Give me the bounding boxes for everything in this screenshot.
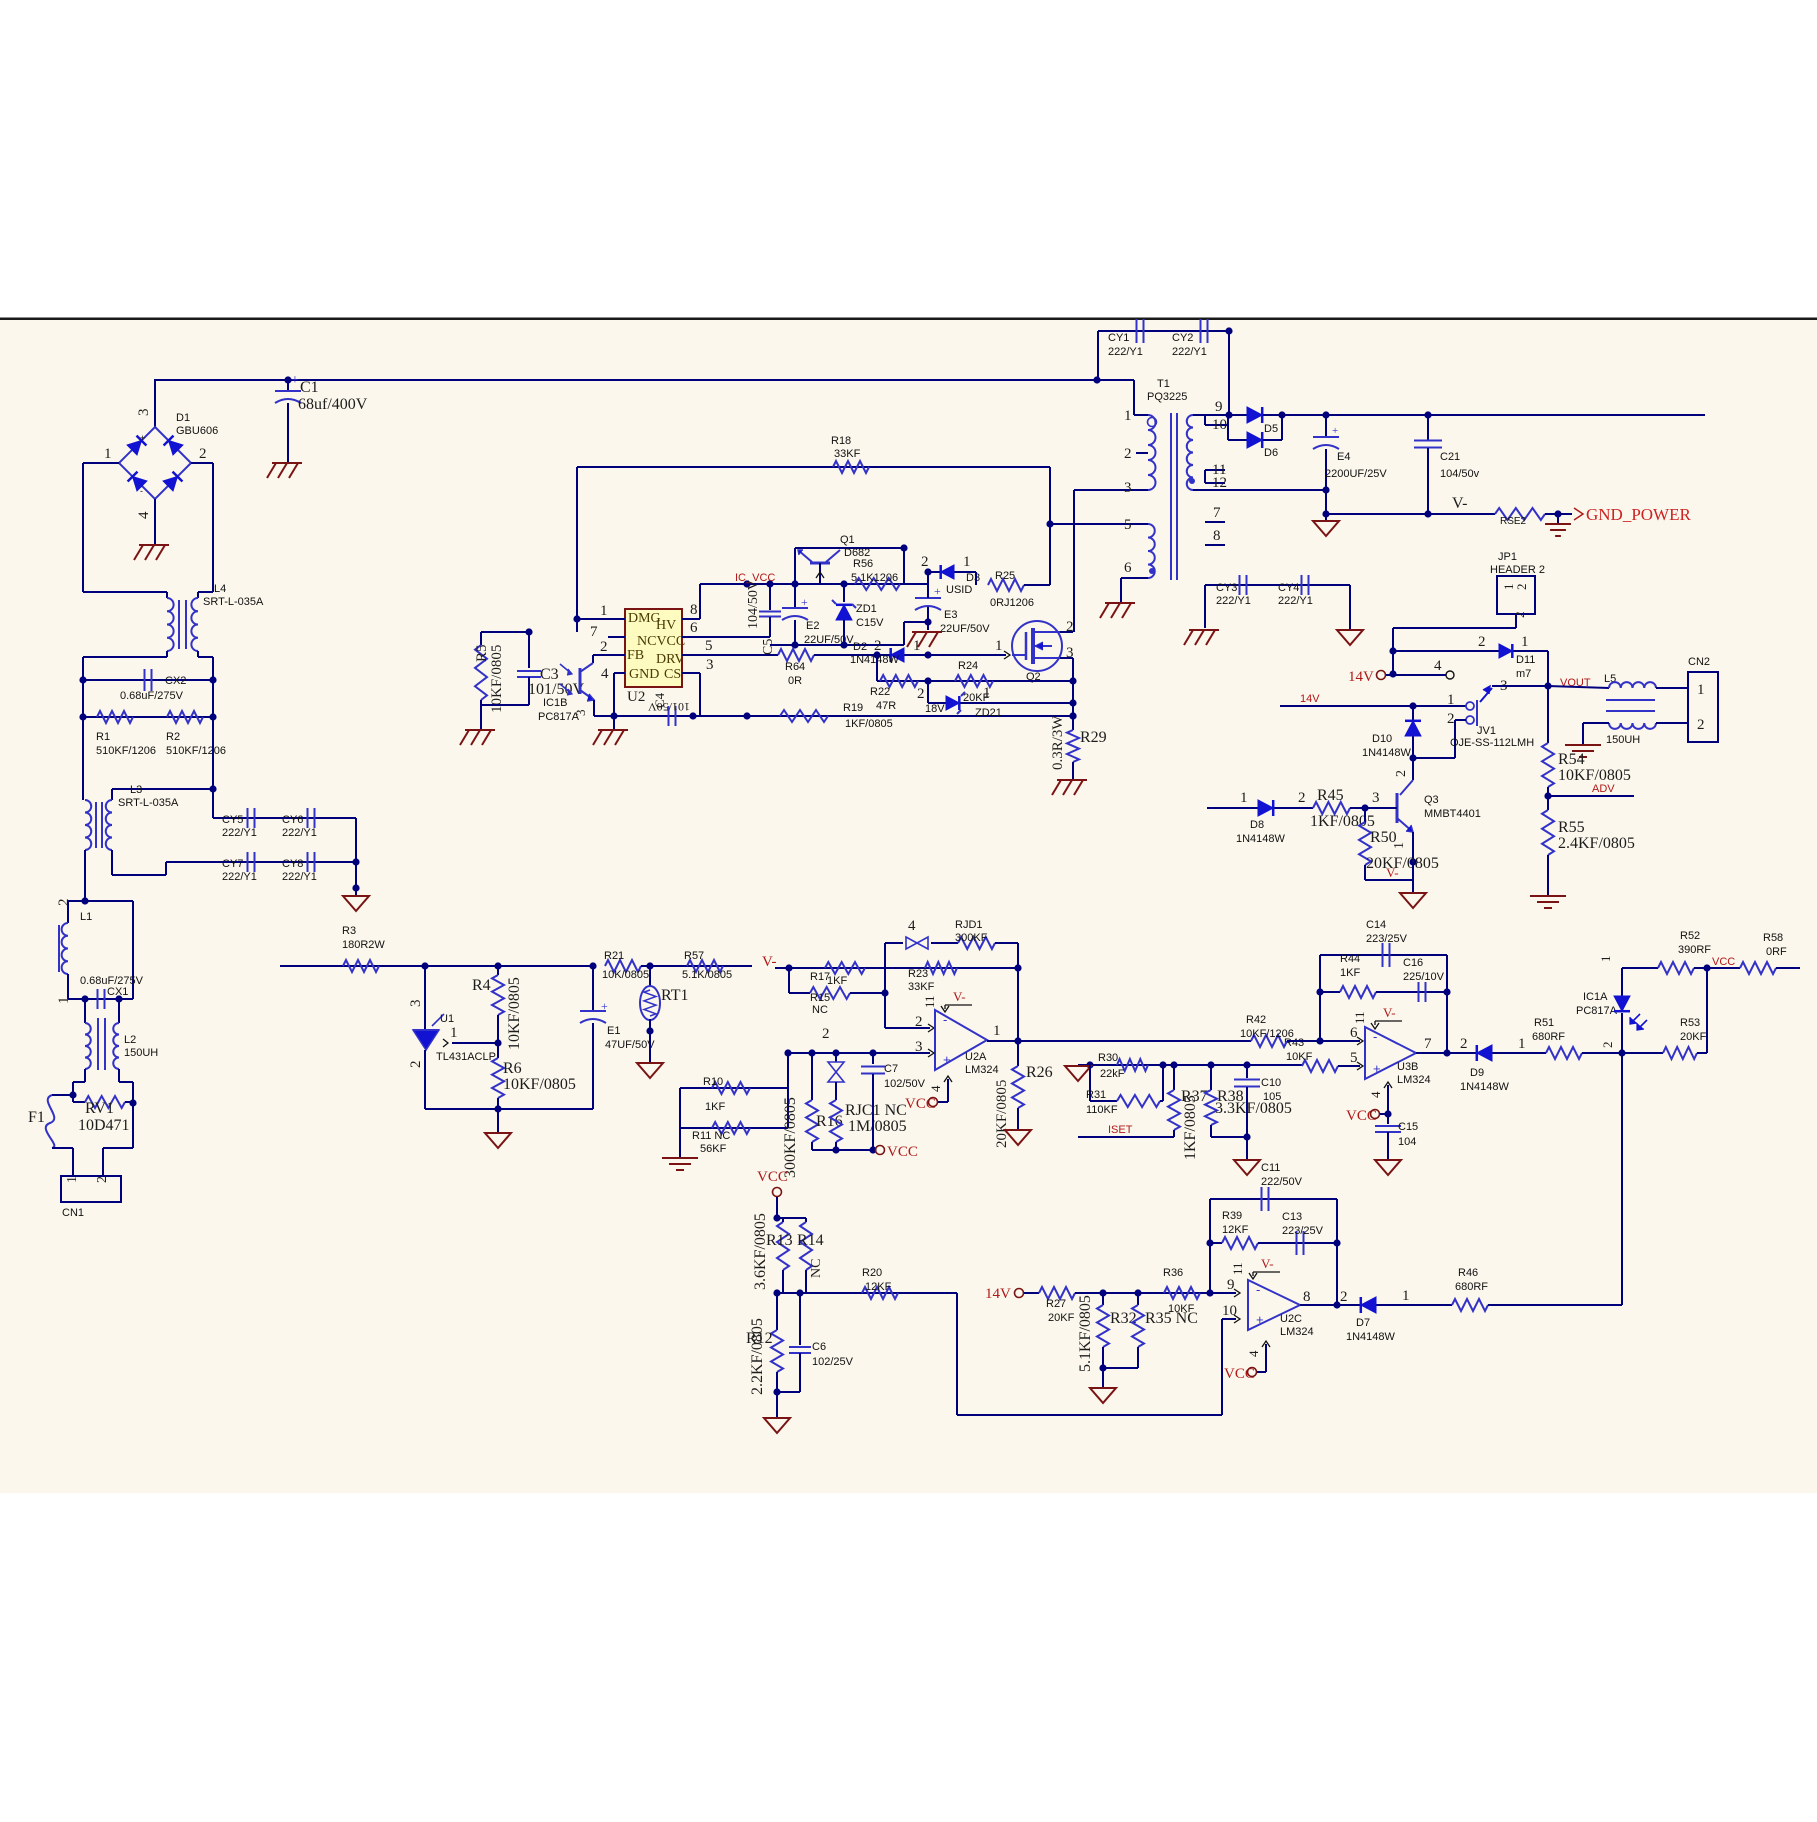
svg-text:HEADER 2: HEADER 2 xyxy=(1490,564,1545,576)
svg-text:1: 1 xyxy=(1521,634,1529,650)
svg-text:R14: R14 xyxy=(797,1232,824,1249)
svg-text:104: 104 xyxy=(1398,1136,1416,1148)
svg-text:1N4148W: 1N4148W xyxy=(1460,1081,1510,1093)
svg-text:0R: 0R xyxy=(788,675,802,687)
svg-text:E1: E1 xyxy=(607,1025,620,1037)
svg-text:1: 1 xyxy=(1402,1288,1410,1304)
svg-text:11: 11 xyxy=(922,995,937,1008)
svg-text:Q3: Q3 xyxy=(1424,794,1439,806)
svg-text:C6: C6 xyxy=(812,1341,826,1353)
svg-text:6: 6 xyxy=(690,620,698,636)
svg-text:390RF: 390RF xyxy=(1678,944,1711,956)
svg-text:CN1: CN1 xyxy=(62,1207,84,1219)
svg-text:C13: C13 xyxy=(1282,1211,1302,1223)
svg-text:R2: R2 xyxy=(166,731,180,743)
svg-text:R45: R45 xyxy=(1317,787,1344,804)
svg-text:150UH: 150UH xyxy=(1606,734,1640,746)
svg-text:5: 5 xyxy=(705,638,713,654)
svg-text:IC1A: IC1A xyxy=(1583,991,1608,1003)
svg-text:102/50V: 102/50V xyxy=(884,1078,926,1090)
svg-text:2: 2 xyxy=(1460,1036,1468,1052)
svg-text:V-: V- xyxy=(953,989,966,1004)
svg-text:4: 4 xyxy=(908,918,916,934)
svg-text:RT1: RT1 xyxy=(661,987,688,1004)
svg-text:5: 5 xyxy=(1350,1050,1358,1066)
svg-text:-: - xyxy=(140,486,143,496)
svg-text:18V: 18V xyxy=(925,703,945,715)
svg-text:R1: R1 xyxy=(96,731,110,743)
svg-text:68uf/400V: 68uf/400V xyxy=(298,396,368,413)
svg-text:510KF/1206: 510KF/1206 xyxy=(96,745,156,757)
svg-text:ISET: ISET xyxy=(1108,1124,1133,1136)
svg-text:C1: C1 xyxy=(300,379,319,396)
svg-text:R42: R42 xyxy=(1246,1014,1266,1026)
svg-text:R54: R54 xyxy=(1558,751,1585,768)
svg-text:VCC: VCC xyxy=(757,1169,788,1185)
svg-text:6: 6 xyxy=(1124,560,1132,576)
svg-text:12KF: 12KF xyxy=(1222,1224,1249,1236)
svg-text:150UH: 150UH xyxy=(124,1047,158,1059)
svg-text:MMBT4401: MMBT4401 xyxy=(1424,808,1481,820)
svg-text:20KF: 20KF xyxy=(1048,1312,1075,1324)
svg-text:R27: R27 xyxy=(1046,1298,1066,1310)
svg-text:RJC1 NC: RJC1 NC xyxy=(845,1102,907,1119)
svg-text:104/50v: 104/50v xyxy=(1440,468,1480,480)
svg-text:m7: m7 xyxy=(1516,668,1531,680)
svg-text:R13: R13 xyxy=(766,1232,793,1249)
svg-text:9: 9 xyxy=(1227,1277,1235,1293)
svg-text:SRT-L-035A: SRT-L-035A xyxy=(118,797,179,809)
svg-text:104/50V: 104/50V xyxy=(746,580,761,629)
svg-text:1N4148W: 1N4148W xyxy=(1362,747,1412,759)
svg-text:1: 1 xyxy=(1518,1036,1526,1052)
svg-text:R32: R32 xyxy=(1110,1310,1137,1327)
svg-text:3: 3 xyxy=(573,710,588,717)
svg-text:1N4148W: 1N4148W xyxy=(1346,1331,1396,1343)
svg-text:U2A: U2A xyxy=(965,1051,987,1063)
svg-text:14V: 14V xyxy=(1300,693,1320,705)
svg-text:IC1B: IC1B xyxy=(543,697,567,709)
svg-text:3: 3 xyxy=(136,409,152,417)
svg-text:1M/0805: 1M/0805 xyxy=(848,1118,907,1135)
svg-text:5.1K1206: 5.1K1206 xyxy=(851,572,898,584)
svg-text:300KF/0805: 300KF/0805 xyxy=(782,1097,799,1178)
svg-text:TL431ACLP: TL431ACLP xyxy=(436,1051,496,1063)
svg-text:R29: R29 xyxy=(1080,729,1107,746)
svg-text:1KF/0805: 1KF/0805 xyxy=(1182,1095,1199,1160)
svg-text:6: 6 xyxy=(1350,1025,1358,1041)
svg-text:Q1: Q1 xyxy=(840,534,855,546)
svg-text:102/25V: 102/25V xyxy=(812,1356,854,1368)
svg-text:4: 4 xyxy=(928,1085,943,1092)
svg-text:2: 2 xyxy=(1478,634,1486,650)
svg-text:R56: R56 xyxy=(853,558,873,570)
svg-text:+: + xyxy=(943,1052,951,1067)
svg-text:2: 2 xyxy=(408,1061,424,1069)
svg-text:R44: R44 xyxy=(1340,953,1360,965)
svg-text:47R: 47R xyxy=(876,700,896,712)
svg-text:2: 2 xyxy=(1340,1289,1348,1305)
svg-text:R51: R51 xyxy=(1534,1017,1554,1029)
svg-text:1: 1 xyxy=(983,685,991,701)
svg-text:300KF: 300KF xyxy=(955,932,988,944)
svg-text:5.1KF/0805: 5.1KF/0805 xyxy=(1077,1295,1094,1372)
svg-text:R4: R4 xyxy=(472,977,491,994)
svg-text:0.3R/3W: 0.3R/3W xyxy=(1050,715,1066,770)
svg-text:R21: R21 xyxy=(604,950,624,962)
svg-text:3: 3 xyxy=(1124,480,1132,496)
svg-text:+: + xyxy=(601,999,608,1013)
svg-text:R36: R36 xyxy=(1163,1267,1183,1279)
svg-text:R55: R55 xyxy=(1558,819,1585,836)
svg-text:U2: U2 xyxy=(627,689,645,705)
svg-text:E3: E3 xyxy=(944,609,957,621)
svg-text:8: 8 xyxy=(1303,1289,1311,1305)
svg-text:D6: D6 xyxy=(1264,447,1278,459)
svg-text:1: 1 xyxy=(65,1176,80,1183)
svg-text:222/Y1: 222/Y1 xyxy=(1278,595,1313,607)
svg-text:1: 1 xyxy=(450,1025,458,1041)
svg-text:+: + xyxy=(1373,1061,1381,1076)
svg-text:+: + xyxy=(291,373,299,388)
svg-text:680RF: 680RF xyxy=(1455,1281,1488,1293)
svg-text:-: - xyxy=(1256,1282,1260,1297)
svg-text:+: + xyxy=(801,595,808,609)
svg-text:222/Y1: 222/Y1 xyxy=(282,871,317,883)
svg-text:C16: C16 xyxy=(1403,957,1423,969)
svg-text:223/25V: 223/25V xyxy=(1366,933,1408,945)
svg-text:10KF/0805: 10KF/0805 xyxy=(506,977,523,1050)
svg-text:4: 4 xyxy=(1246,1350,1261,1357)
svg-text:E2: E2 xyxy=(806,620,819,632)
svg-text:CY5: CY5 xyxy=(222,814,243,826)
svg-text:+: + xyxy=(140,433,145,443)
svg-text:R57: R57 xyxy=(684,950,704,962)
svg-text:LM324: LM324 xyxy=(965,1064,999,1076)
svg-text:10D471: 10D471 xyxy=(78,1117,130,1134)
svg-text:10KF/0805: 10KF/0805 xyxy=(489,645,505,713)
svg-text:D1: D1 xyxy=(176,412,190,424)
svg-text:R3: R3 xyxy=(342,925,356,937)
svg-text:10: 10 xyxy=(1212,417,1227,433)
svg-text:USID: USID xyxy=(946,584,972,596)
svg-text:2: 2 xyxy=(1514,584,1529,591)
svg-text:U3B: U3B xyxy=(1397,1061,1418,1073)
svg-text:1: 1 xyxy=(995,638,1003,654)
svg-text:1KF: 1KF xyxy=(827,975,847,987)
svg-text:U1: U1 xyxy=(440,1013,454,1025)
svg-text:C5: C5 xyxy=(761,639,776,655)
svg-text:V-: V- xyxy=(1386,865,1399,880)
svg-text:3.6KF/0805: 3.6KF/0805 xyxy=(752,1213,769,1290)
svg-text:5: 5 xyxy=(1124,517,1132,533)
svg-text:222/Y1: 222/Y1 xyxy=(1108,346,1143,358)
svg-text:CY3: CY3 xyxy=(1216,582,1237,594)
svg-text:CN2: CN2 xyxy=(1688,656,1710,668)
svg-text:CY6: CY6 xyxy=(282,814,303,826)
svg-text:2: 2 xyxy=(1600,1042,1615,1049)
svg-text:LM324: LM324 xyxy=(1397,1074,1431,1086)
svg-text:R26: R26 xyxy=(1026,1064,1053,1081)
svg-text:C10: C10 xyxy=(1261,1077,1281,1089)
svg-text:R58: R58 xyxy=(1763,932,1783,944)
svg-text:R15: R15 xyxy=(810,992,830,1004)
svg-text:+: + xyxy=(934,584,941,598)
svg-text:R52: R52 xyxy=(1680,930,1700,942)
svg-text:2: 2 xyxy=(822,1026,830,1042)
svg-text:2.4KF/0805: 2.4KF/0805 xyxy=(1558,835,1635,852)
svg-text:105: 105 xyxy=(1263,1091,1281,1103)
svg-text:R24: R24 xyxy=(958,660,978,672)
svg-text:225/10V: 225/10V xyxy=(1403,971,1445,983)
svg-text:1: 1 xyxy=(600,603,608,619)
svg-text:R31: R31 xyxy=(1086,1089,1106,1101)
svg-text:R23: R23 xyxy=(908,968,928,980)
svg-text:680RF: 680RF xyxy=(1532,1031,1565,1043)
svg-text:+: + xyxy=(1256,1312,1264,1327)
svg-text:FB: FB xyxy=(627,648,644,663)
svg-text:3: 3 xyxy=(408,1000,424,1008)
svg-text:D5: D5 xyxy=(1264,423,1278,435)
svg-text:1: 1 xyxy=(56,997,72,1005)
svg-text:4: 4 xyxy=(1368,1091,1383,1098)
svg-text:222/Y1: 222/Y1 xyxy=(222,827,257,839)
svg-text:2: 2 xyxy=(917,686,925,702)
svg-text:1KF: 1KF xyxy=(705,1101,725,1113)
svg-text:CY2: CY2 xyxy=(1172,332,1193,344)
svg-text:D7: D7 xyxy=(1356,1317,1370,1329)
svg-text:C11: C11 xyxy=(1261,1162,1280,1174)
svg-text:12KF: 12KF xyxy=(865,1281,892,1293)
svg-text:R18: R18 xyxy=(831,435,851,447)
svg-text:0RJ1206: 0RJ1206 xyxy=(990,597,1034,609)
svg-text:1: 1 xyxy=(993,1023,1001,1039)
svg-text:VCC: VCC xyxy=(887,1144,918,1160)
svg-text:1KF: 1KF xyxy=(1340,967,1360,979)
svg-text:F1: F1 xyxy=(28,1109,45,1126)
svg-text:2: 2 xyxy=(874,638,882,654)
svg-text:33KF: 33KF xyxy=(908,981,935,993)
svg-text:C14: C14 xyxy=(1366,919,1386,931)
svg-text:CS: CS xyxy=(664,667,681,682)
svg-text:11: 11 xyxy=(1352,1011,1367,1024)
svg-text:V-: V- xyxy=(1383,1005,1396,1020)
svg-text:510KF/1206: 510KF/1206 xyxy=(166,745,226,757)
svg-text:2: 2 xyxy=(56,899,72,907)
svg-text:7: 7 xyxy=(1213,505,1221,521)
svg-text:ADV: ADV xyxy=(1592,783,1615,795)
svg-text:R25: R25 xyxy=(995,570,1015,582)
svg-text:10KF: 10KF xyxy=(1286,1051,1313,1063)
svg-text:10KF: 10KF xyxy=(1168,1303,1195,1315)
svg-text:R20: R20 xyxy=(862,1267,882,1279)
svg-text:2: 2 xyxy=(199,446,207,462)
svg-text:1: 1 xyxy=(963,554,971,570)
svg-text:2: 2 xyxy=(95,1176,110,1183)
svg-text:L2: L2 xyxy=(124,1034,136,1046)
svg-text:1: 1 xyxy=(1447,692,1455,708)
svg-text:1N4148W: 1N4148W xyxy=(850,654,900,666)
svg-text:14V: 14V xyxy=(985,1286,1011,1302)
svg-text:3: 3 xyxy=(706,657,714,673)
svg-text:2: 2 xyxy=(1447,711,1455,727)
svg-text:L4: L4 xyxy=(214,583,226,595)
svg-text:V-: V- xyxy=(762,954,776,970)
svg-text:ZD21: ZD21 xyxy=(975,707,1002,719)
svg-text:T1: T1 xyxy=(1157,378,1170,390)
svg-text:2: 2 xyxy=(600,639,608,655)
svg-text:SRT-L-035A: SRT-L-035A xyxy=(203,596,264,608)
svg-text:7: 7 xyxy=(590,624,598,640)
svg-text:10: 10 xyxy=(1222,1303,1237,1319)
svg-text:2.2KF/0805: 2.2KF/0805 xyxy=(749,1318,766,1395)
svg-text:2: 2 xyxy=(1394,770,1409,777)
svg-text:CY7: CY7 xyxy=(222,858,243,870)
svg-text:VCC: VCC xyxy=(1712,956,1735,968)
svg-text:56KF: 56KF xyxy=(700,1143,727,1155)
svg-text:R19: R19 xyxy=(843,702,863,714)
svg-text:D2: D2 xyxy=(853,641,867,653)
svg-text:0.68uF/275V: 0.68uF/275V xyxy=(80,975,144,987)
svg-text:20KF/0805: 20KF/0805 xyxy=(1366,855,1439,872)
svg-text:D10: D10 xyxy=(1372,733,1392,745)
svg-text:10K/0805: 10K/0805 xyxy=(602,969,649,981)
svg-text:10KF/0805: 10KF/0805 xyxy=(503,1076,576,1093)
svg-text:LM324: LM324 xyxy=(1280,1326,1314,1338)
svg-text:101/50V: 101/50V xyxy=(528,681,584,698)
svg-text:CY8: CY8 xyxy=(282,858,303,870)
svg-text:RSE2: RSE2 xyxy=(1500,516,1527,527)
svg-text:7: 7 xyxy=(1424,1036,1432,1052)
svg-text:1: 1 xyxy=(913,638,921,654)
svg-text:R6: R6 xyxy=(503,1060,522,1077)
svg-text:D9: D9 xyxy=(1470,1067,1484,1079)
svg-text:4: 4 xyxy=(601,666,609,682)
svg-text:L1: L1 xyxy=(80,911,92,923)
svg-text:R64: R64 xyxy=(785,661,805,673)
svg-text:1: 1 xyxy=(1697,682,1705,698)
svg-text:GND: GND xyxy=(629,667,659,682)
svg-text:ZD1: ZD1 xyxy=(856,603,877,615)
svg-text:5.1K/0805: 5.1K/0805 xyxy=(682,969,732,981)
svg-text:V-: V- xyxy=(1452,495,1467,512)
svg-text:4: 4 xyxy=(1434,658,1442,674)
svg-text:222/Y1: 222/Y1 xyxy=(282,827,317,839)
svg-text:222/Y1: 222/Y1 xyxy=(222,871,257,883)
svg-text:8: 8 xyxy=(1213,528,1221,544)
svg-text:2: 2 xyxy=(1298,790,1306,806)
svg-text:DRV: DRV xyxy=(656,652,684,667)
svg-text:14V: 14V xyxy=(1348,669,1374,685)
svg-text:1: 1 xyxy=(1124,408,1132,424)
svg-text:2: 2 xyxy=(1512,612,1527,619)
svg-text:CY4: CY4 xyxy=(1278,582,1299,594)
svg-text:NC: NC xyxy=(812,1004,828,1016)
svg-text:NC: NC xyxy=(809,1259,824,1278)
svg-text:0RF: 0RF xyxy=(1766,946,1787,958)
svg-text:11: 11 xyxy=(1230,1262,1245,1275)
svg-text:GBU606: GBU606 xyxy=(176,425,218,437)
svg-text:4: 4 xyxy=(136,511,152,519)
svg-text:GND_POWER: GND_POWER xyxy=(1586,505,1691,524)
svg-text:222/Y1: 222/Y1 xyxy=(1172,346,1207,358)
svg-text:1: 1 xyxy=(1240,790,1248,806)
svg-text:2: 2 xyxy=(1124,446,1132,462)
svg-text:E4: E4 xyxy=(1337,451,1350,463)
svg-text:NCVCC: NCVCC xyxy=(637,634,685,649)
svg-text:C21: C21 xyxy=(1440,451,1460,463)
svg-text:20KF/0805: 20KF/0805 xyxy=(994,1080,1010,1148)
svg-text:1: 1 xyxy=(1598,956,1613,963)
svg-text:R11 NC: R11 NC xyxy=(692,1130,730,1142)
svg-text:R46: R46 xyxy=(1458,1267,1478,1279)
svg-text:22UF/50V: 22UF/50V xyxy=(940,623,990,635)
svg-text:R10: R10 xyxy=(703,1076,723,1088)
svg-text:-: - xyxy=(943,1012,947,1027)
svg-text:C7: C7 xyxy=(884,1063,898,1075)
svg-text:33KF: 33KF xyxy=(834,448,861,460)
svg-text:-: - xyxy=(1373,1029,1377,1044)
svg-text:47UF/50V: 47UF/50V xyxy=(605,1039,655,1051)
svg-text:PQ3225: PQ3225 xyxy=(1147,391,1187,403)
svg-text:R50: R50 xyxy=(1370,829,1397,846)
svg-text:110KF: 110KF xyxy=(1086,1104,1118,1116)
svg-text:2: 2 xyxy=(1697,717,1705,733)
svg-text:L3: L3 xyxy=(130,784,142,796)
svg-text:R22: R22 xyxy=(870,686,890,698)
svg-text:1KF/0805: 1KF/0805 xyxy=(845,718,893,730)
svg-text:CY1: CY1 xyxy=(1108,332,1129,344)
svg-text:R5: R5 xyxy=(474,644,490,662)
svg-text:CX2: CX2 xyxy=(165,675,186,687)
svg-text:2200UF/25V: 2200UF/25V xyxy=(1325,468,1387,480)
svg-text:RV1: RV1 xyxy=(85,1100,114,1117)
svg-text:JV1: JV1 xyxy=(1477,725,1496,737)
svg-text:1: 1 xyxy=(104,446,112,462)
svg-text:3: 3 xyxy=(1372,790,1380,806)
svg-text:D8: D8 xyxy=(1250,819,1264,831)
svg-text:180R2W: 180R2W xyxy=(342,939,385,951)
svg-text:101/50V: 101/50V xyxy=(648,700,690,714)
svg-text:223/25V: 223/25V xyxy=(1282,1225,1324,1237)
svg-text:C15V: C15V xyxy=(856,617,884,629)
svg-text:HV: HV xyxy=(656,618,676,633)
svg-text:PC817A: PC817A xyxy=(1576,1005,1618,1017)
svg-text:C15: C15 xyxy=(1398,1121,1418,1133)
svg-text:222/50V: 222/50V xyxy=(1261,1176,1303,1188)
svg-text:RJD1: RJD1 xyxy=(955,919,983,931)
svg-text:R30: R30 xyxy=(1098,1052,1118,1064)
svg-text:JP1: JP1 xyxy=(1498,551,1517,563)
svg-text:D11: D11 xyxy=(1516,654,1535,666)
svg-text:20KF: 20KF xyxy=(1680,1031,1707,1043)
svg-text:1N4148W: 1N4148W xyxy=(1236,833,1286,845)
svg-text:R53: R53 xyxy=(1680,1017,1700,1029)
svg-text:2: 2 xyxy=(921,554,929,570)
svg-text:9: 9 xyxy=(1215,399,1223,415)
svg-text:OJE-SS-112LMH: OJE-SS-112LMH xyxy=(1450,737,1534,749)
svg-text:D3: D3 xyxy=(966,572,980,584)
svg-text:10KF/0805: 10KF/0805 xyxy=(1558,767,1631,784)
svg-text:8: 8 xyxy=(690,602,698,618)
svg-text:R39: R39 xyxy=(1222,1210,1242,1222)
svg-text:12: 12 xyxy=(1212,475,1227,491)
svg-text:222/Y1: 222/Y1 xyxy=(1216,595,1251,607)
svg-text:0.68uF/275V: 0.68uF/275V xyxy=(120,690,184,702)
svg-text:U2C: U2C xyxy=(1280,1313,1302,1325)
svg-text:10KF/1206: 10KF/1206 xyxy=(1240,1028,1294,1040)
svg-text:22kF: 22kF xyxy=(1100,1068,1125,1080)
